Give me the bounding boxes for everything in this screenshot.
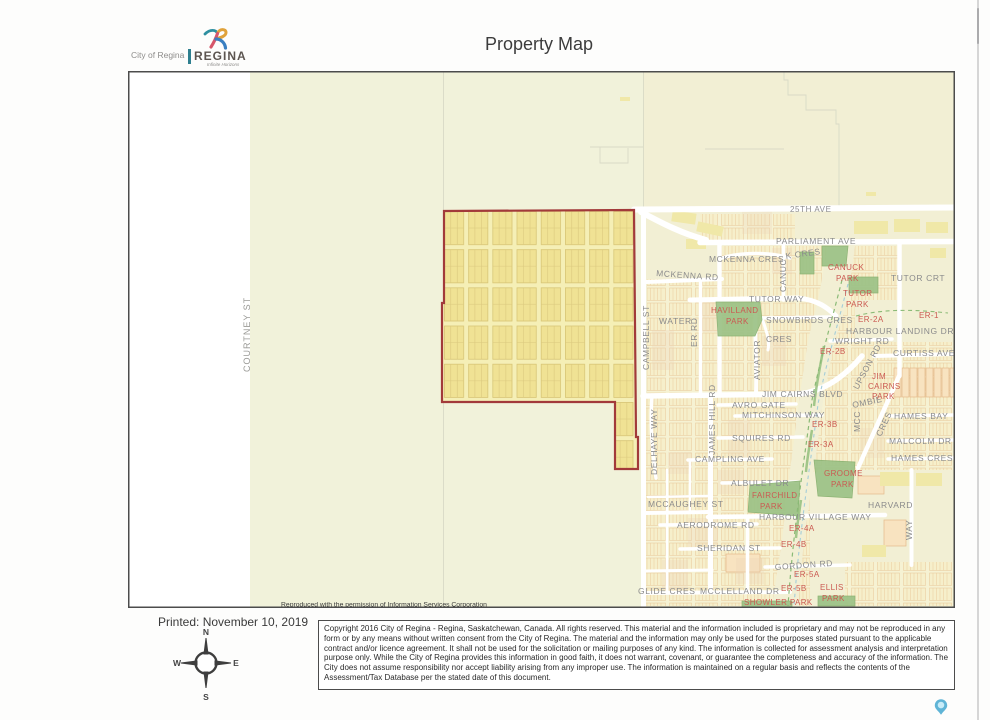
svg-text:S: S <box>203 692 209 702</box>
svg-text:PARK: PARK <box>726 317 749 326</box>
svg-text:SHOWLER PARK: SHOWLER PARK <box>744 598 813 607</box>
svg-text:CANUCK: CANUCK <box>828 263 864 272</box>
svg-text:HARBOUR VILLAGE WAY: HARBOUR VILLAGE WAY <box>759 512 871 522</box>
svg-text:FAIRCHILD: FAIRCHILD <box>752 491 797 500</box>
svg-text:CRES: CRES <box>766 334 792 344</box>
svg-text:WAY: WAY <box>904 520 914 540</box>
svg-text:MCCAUGHEY ST: MCCAUGHEY ST <box>648 499 724 509</box>
svg-text:GLIDE CRES: GLIDE CRES <box>638 586 696 596</box>
svg-text:MCCLELLAND DR: MCCLELLAND DR <box>700 586 780 596</box>
svg-text:ER-1: ER-1 <box>919 311 939 320</box>
svg-text:SHERIDAN ST: SHERIDAN ST <box>697 543 761 553</box>
svg-text:AERODROME RD: AERODROME RD <box>677 520 755 530</box>
svg-text:HAMES CRES: HAMES CRES <box>891 453 953 463</box>
svg-text:TUTOR: TUTOR <box>843 289 872 298</box>
svg-text:ER RD: ER RD <box>689 318 699 347</box>
svg-text:25TH AVE: 25TH AVE <box>790 205 832 214</box>
svg-text:ER-3A: ER-3A <box>808 440 834 449</box>
svg-text:ER-2B: ER-2B <box>820 347 846 356</box>
svg-text:W: W <box>173 658 182 668</box>
svg-text:PARLIAMENT AVE: PARLIAMENT AVE <box>776 236 856 246</box>
svg-text:PARK: PARK <box>822 594 845 603</box>
svg-text:PARK: PARK <box>836 274 859 283</box>
svg-text:SNOWBIRDS CRES: SNOWBIRDS CRES <box>766 315 853 325</box>
svg-text:CAMPLING AVE: CAMPLING AVE <box>695 454 765 464</box>
svg-text:ER-5B: ER-5B <box>781 584 807 593</box>
svg-text:DELHAYE WAY: DELHAYE WAY <box>649 409 659 475</box>
svg-text:PARK: PARK <box>872 392 895 401</box>
svg-text:AVRO GATE: AVRO GATE <box>732 400 786 410</box>
svg-text:HAVILLAND: HAVILLAND <box>711 306 758 315</box>
svg-text:N: N <box>203 627 209 637</box>
svg-text:TUTOR CRT: TUTOR CRT <box>891 273 945 283</box>
svg-text:HARBOUR LANDING DR: HARBOUR LANDING DR <box>846 326 954 336</box>
svg-text:TUTOR WAY: TUTOR WAY <box>749 294 804 304</box>
svg-text:ER-3B: ER-3B <box>812 420 838 429</box>
svg-text:PARK: PARK <box>760 502 783 511</box>
svg-text:CANUC: CANUC <box>778 259 788 292</box>
svg-text:ER-4B: ER-4B <box>781 540 807 549</box>
svg-text:ALBULET DR: ALBULET DR <box>731 478 789 488</box>
svg-text:MCC: MCC <box>852 411 862 432</box>
svg-text:JIM CAIRNS BLVD: JIM CAIRNS BLVD <box>762 389 843 399</box>
svg-text:WRIGHT RD: WRIGHT RD <box>835 336 889 346</box>
svg-text:CAIRNS: CAIRNS <box>868 382 901 391</box>
svg-text:AVIATOR: AVIATOR <box>752 340 762 380</box>
svg-text:ER-4A: ER-4A <box>789 524 815 533</box>
svg-text:E: E <box>233 658 239 668</box>
svg-text:JIM: JIM <box>872 372 886 381</box>
svg-text:ELLIS: ELLIS <box>820 583 844 592</box>
svg-text:CAMPBELL ST: CAMPBELL ST <box>641 305 651 370</box>
svg-text:PARK: PARK <box>831 480 854 489</box>
svg-text:MITCHINSON WAY: MITCHINSON WAY <box>742 410 825 420</box>
svg-text:MALCOLM DR: MALCOLM DR <box>889 436 952 446</box>
svg-text:GROOME: GROOME <box>824 469 863 478</box>
svg-text:SQUIRES RD: SQUIRES RD <box>732 433 791 443</box>
svg-text:HAMES BAY: HAMES BAY <box>894 411 948 421</box>
svg-text:HARVARD: HARVARD <box>868 500 913 510</box>
svg-text:MCKENNA CRES: MCKENNA CRES <box>709 254 784 264</box>
svg-text:ER-5A: ER-5A <box>794 570 820 579</box>
svg-text:PARK: PARK <box>846 300 869 309</box>
svg-text:WATER: WATER <box>659 316 692 326</box>
svg-text:JAMES HILL RD: JAMES HILL RD <box>707 384 717 455</box>
svg-text:ER-2A: ER-2A <box>858 315 884 324</box>
svg-text:COURTNEY ST: COURTNEY ST <box>242 297 252 372</box>
svg-text:CURTISS AVE: CURTISS AVE <box>893 348 955 358</box>
